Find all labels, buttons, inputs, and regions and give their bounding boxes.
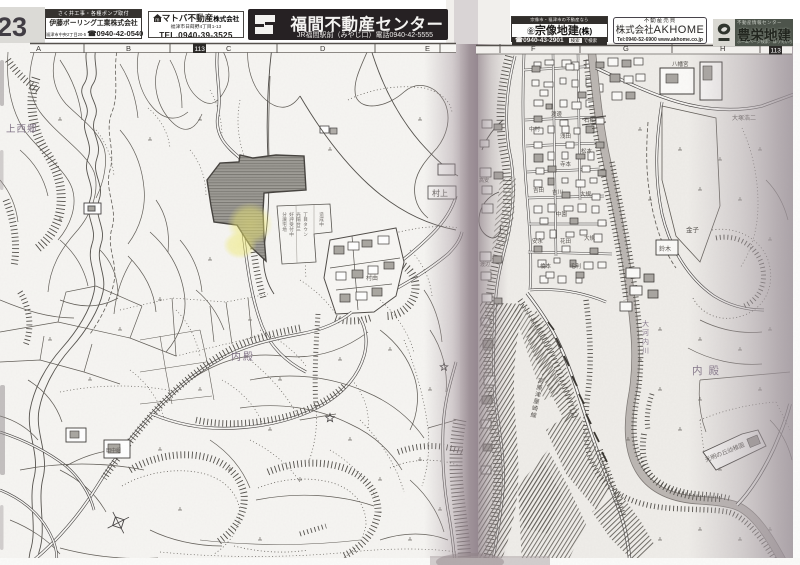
- svg-text:113: 113: [771, 48, 782, 55]
- svg-text:D: D: [320, 44, 326, 53]
- svg-text:G: G: [623, 44, 629, 53]
- svg-text:113: 113: [195, 46, 206, 53]
- svg-text:B: B: [126, 44, 131, 53]
- svg-text:F: F: [531, 44, 536, 53]
- svg-text:C: C: [226, 44, 232, 53]
- svg-text:E: E: [425, 44, 430, 53]
- svg-text:A: A: [36, 44, 41, 53]
- svg-text:m: m: [155, 18, 159, 23]
